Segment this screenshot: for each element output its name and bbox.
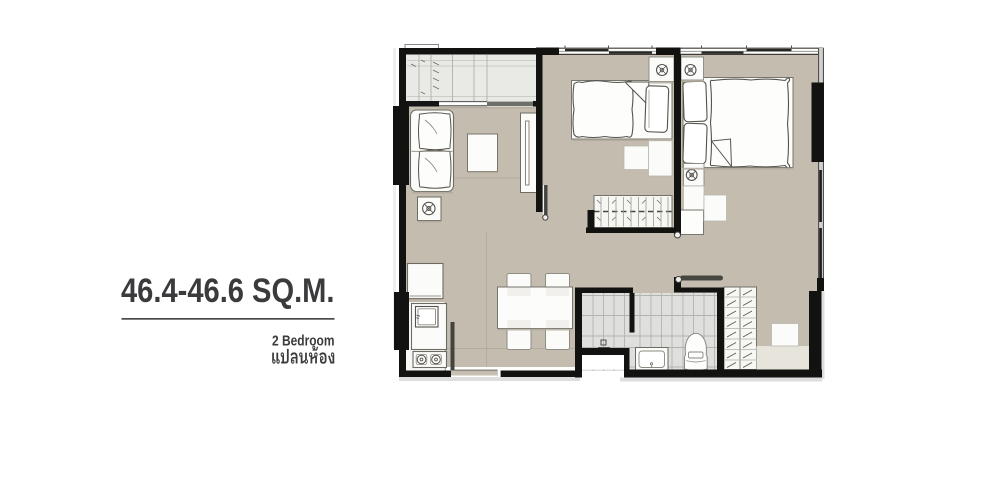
svg-text:2 Bedroom: 2 Bedroom (272, 334, 335, 350)
svg-text:46.4-46.6 SQ.M.: 46.4-46.6 SQ.M. (121, 272, 335, 310)
